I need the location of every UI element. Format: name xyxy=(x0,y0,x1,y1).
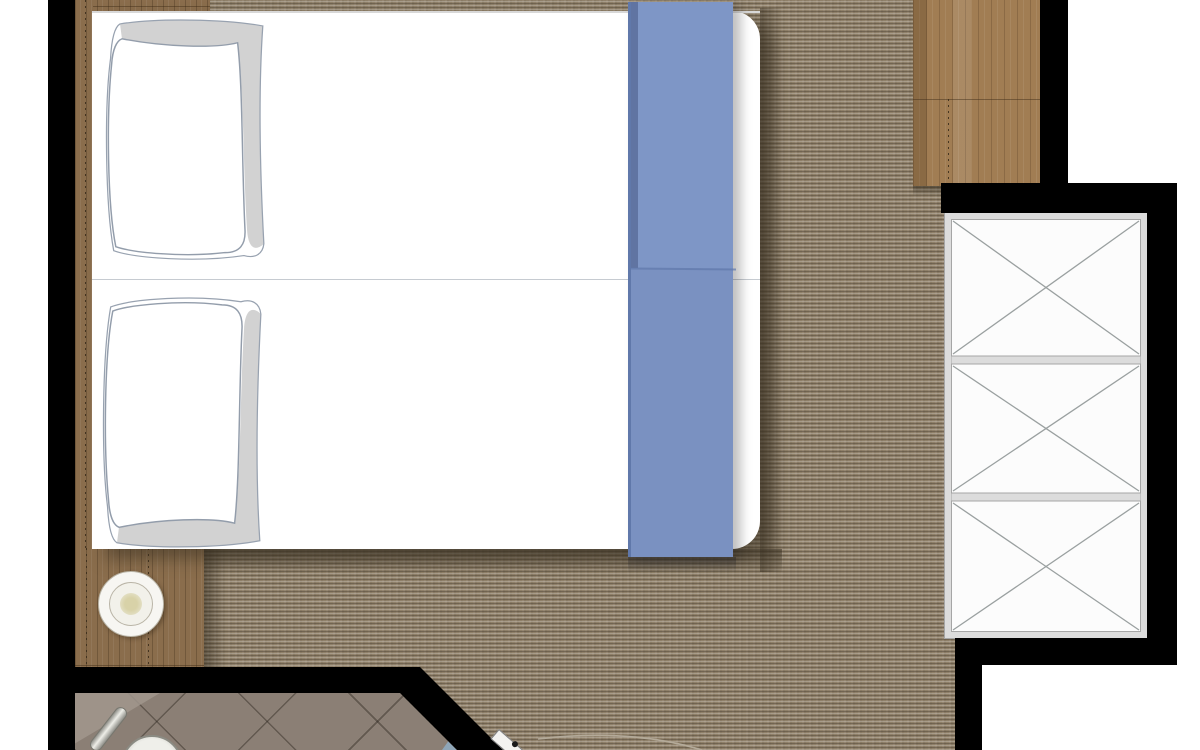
runner-seam xyxy=(631,267,736,270)
pillows xyxy=(94,12,289,552)
wall-closet-bottom xyxy=(955,638,1177,665)
wardrobe xyxy=(945,213,1147,638)
wood-floor-panel xyxy=(913,0,1040,186)
pillow-top xyxy=(107,20,264,259)
wardrobe-sections xyxy=(951,219,1141,632)
lamp-ring xyxy=(109,582,153,626)
headboard-side-panel xyxy=(75,0,93,550)
pillow-bottom xyxy=(104,298,261,547)
bed-runner xyxy=(628,2,733,557)
lamp-glow xyxy=(120,593,142,615)
floor-plan xyxy=(0,0,1200,750)
wall-left xyxy=(48,0,75,750)
sink-bowl xyxy=(121,735,183,750)
wall-top-right xyxy=(1040,0,1068,185)
wardrobe-shelf xyxy=(951,356,1141,364)
wall-closet-top xyxy=(941,183,1177,213)
wardrobe-shelf xyxy=(951,493,1141,501)
wall-bottom-right xyxy=(955,638,982,750)
wall-right xyxy=(1147,183,1177,665)
table-lamp xyxy=(98,571,164,637)
runner-fold xyxy=(631,2,638,268)
